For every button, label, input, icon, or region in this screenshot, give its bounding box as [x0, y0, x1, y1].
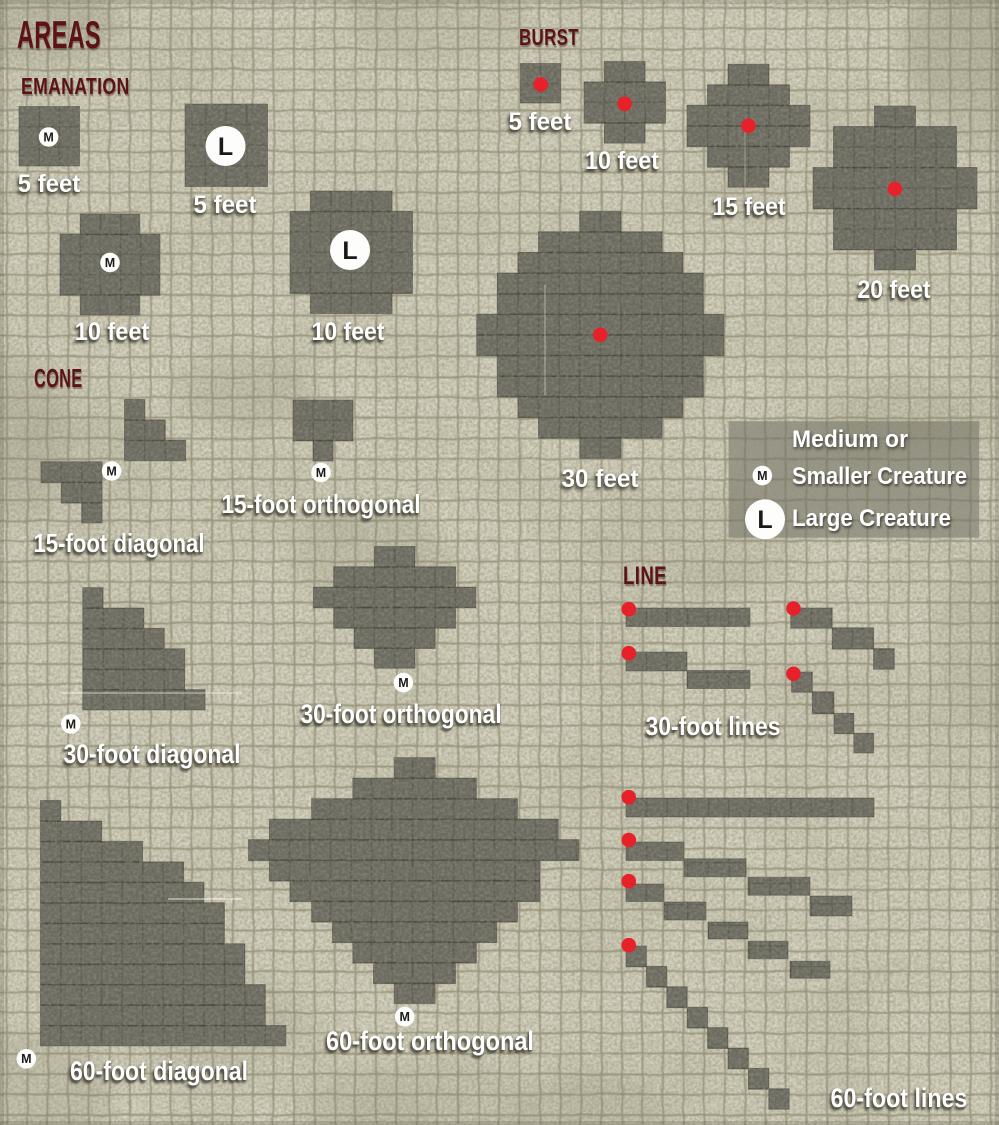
- svg-text:M: M: [105, 256, 115, 270]
- svg-text:L: L: [218, 133, 233, 161]
- svg-text:L: L: [757, 506, 772, 534]
- svg-text:M: M: [757, 469, 767, 483]
- svg-text:M: M: [398, 676, 408, 690]
- svg-text:M: M: [21, 1052, 31, 1066]
- svg-text:M: M: [66, 717, 76, 731]
- svg-text:M: M: [399, 1010, 409, 1024]
- svg-text:M: M: [316, 466, 326, 480]
- svg-text:L: L: [342, 237, 357, 265]
- svg-text:M: M: [106, 464, 116, 478]
- svg-text:M: M: [43, 130, 53, 144]
